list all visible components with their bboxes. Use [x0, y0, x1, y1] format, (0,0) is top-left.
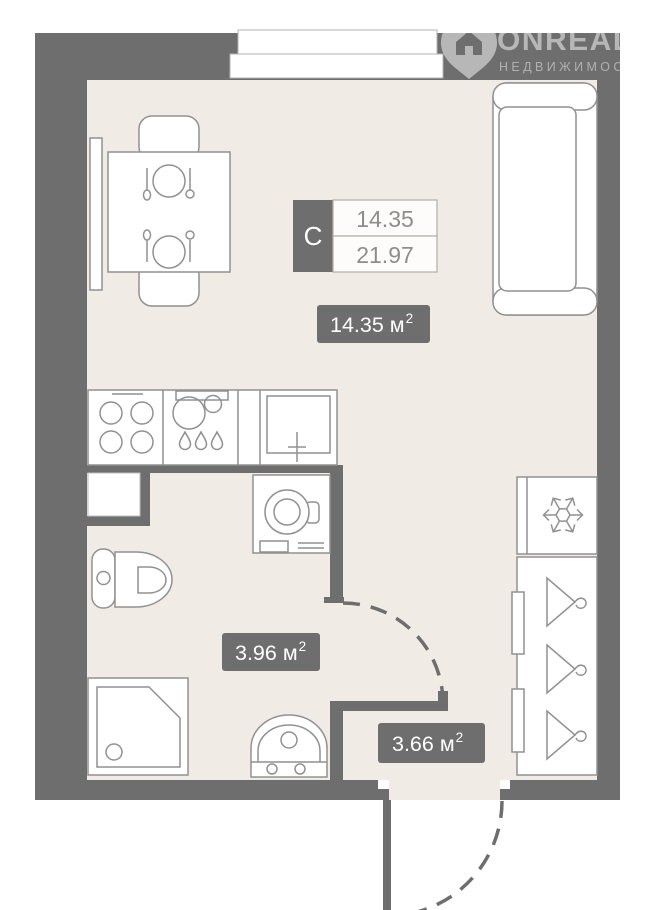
wall-bathroom-upper — [330, 465, 343, 600]
wardrobe — [512, 557, 597, 775]
living-area-chip-text: 14.35 м2 — [330, 311, 413, 337]
wall-console — [90, 138, 102, 290]
sofa — [493, 83, 597, 315]
wall-left — [35, 33, 87, 800]
bathroom-area-sup: 2 — [299, 639, 307, 654]
sofa-armrest-top — [493, 83, 597, 110]
floor-plan-page: С 14.35 21.97 14.35 м2 3.96 м2 3.66 м2 O… — [0, 0, 656, 910]
wardrobe-door-section — [512, 689, 524, 752]
bathroom-door-jamb — [324, 597, 344, 603]
shower-tray — [88, 678, 188, 775]
entrance-threshold — [389, 780, 500, 800]
watermark-logo: ONREALT НЕДВИЖИМОСТЬ — [441, 15, 650, 79]
bathroom-area-value: 3.96 м — [235, 641, 298, 665]
wardrobe-door-section — [512, 592, 524, 654]
unit-total-area-value: 21.97 — [356, 242, 414, 268]
washbasin — [251, 715, 327, 777]
watermark-tagline: НЕДВИЖИМОСТЬ — [499, 60, 648, 74]
toilet-tank — [92, 549, 115, 608]
bathroom-door-leaf — [330, 701, 448, 711]
watermark-brand: ONREALT — [497, 24, 650, 57]
shaft-wall-bottom — [87, 516, 150, 526]
wall-bottom-right — [510, 780, 620, 800]
wall-bathroom-lower — [330, 701, 343, 780]
fridge — [517, 477, 597, 554]
window — [230, 30, 443, 78]
duct-shaft — [88, 473, 140, 516]
window-outer-pane — [238, 30, 437, 54]
washing-machine — [253, 475, 330, 553]
floor-plan: С 14.35 21.97 14.35 м2 3.96 м2 3.66 м2 O… — [0, 0, 656, 910]
sofa-cushion — [499, 107, 576, 291]
hallway-area-chip-text: 3.66 м2 — [392, 730, 463, 756]
entrance-jamb-left — [378, 789, 389, 800]
unit-type-label: С — [304, 221, 323, 251]
hallway-area-value: 3.66 м — [392, 732, 455, 756]
unit-card: С 14.35 21.97 — [293, 200, 437, 272]
wall-right — [597, 33, 620, 800]
bathroom-door-leaf-tip — [438, 691, 448, 711]
washing-machine-drum — [265, 490, 309, 534]
sofa-armrest-bottom — [493, 288, 597, 315]
window-sill — [230, 54, 443, 78]
wall-kitchen — [87, 465, 343, 473]
living-area-value: 14.35 м — [330, 313, 405, 337]
shower — [88, 678, 188, 775]
dining-table — [108, 152, 230, 272]
hallway-area-sup: 2 — [456, 730, 464, 745]
entrance-jamb-right — [500, 789, 510, 800]
bathroom-area-chip-text: 3.96 м2 — [235, 639, 306, 665]
living-area-sup: 2 — [406, 311, 414, 326]
entrance-door-swing-arc — [387, 801, 502, 910]
entrance-door-leaf — [383, 800, 391, 910]
unit-living-area-value: 14.35 — [356, 206, 414, 232]
kitchen-counter — [88, 390, 337, 465]
wall-bottom-left — [35, 780, 378, 800]
